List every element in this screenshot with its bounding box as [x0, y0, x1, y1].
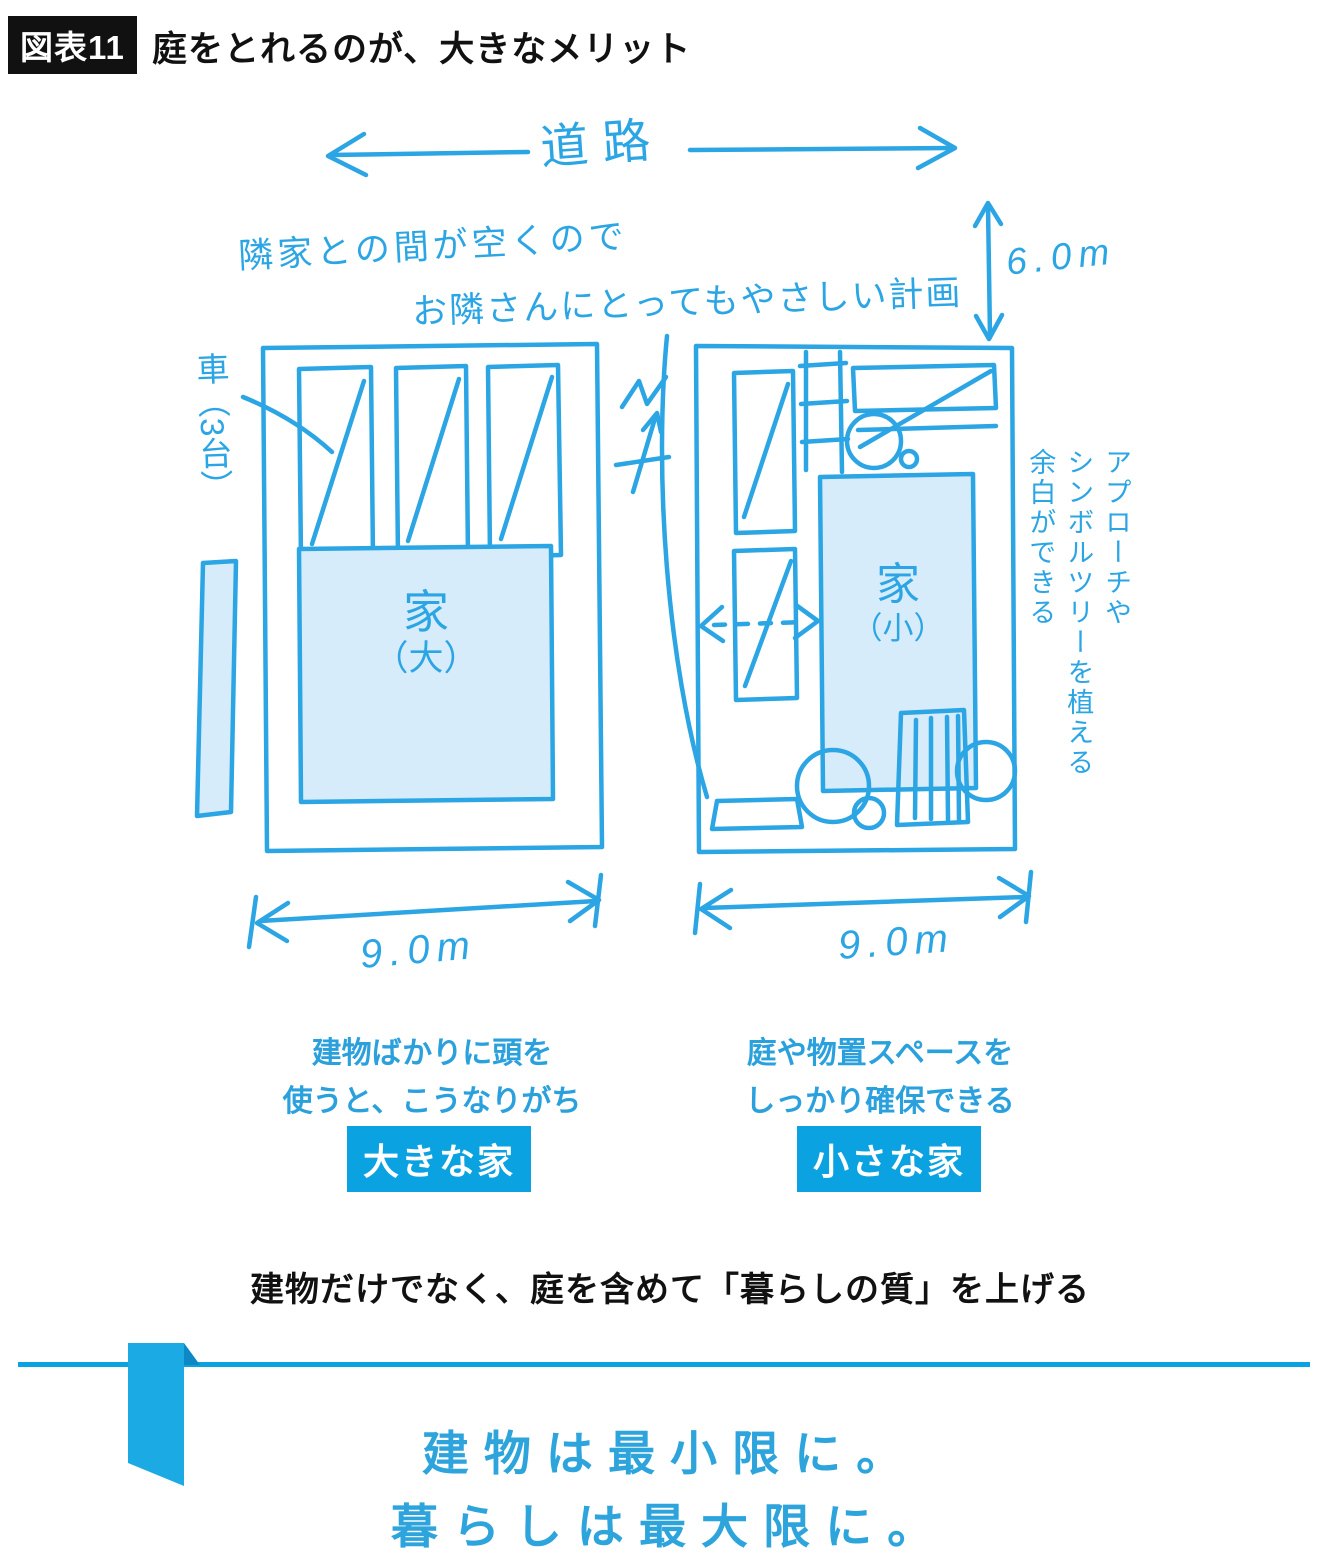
house-small-label-line2: （小）	[798, 611, 998, 647]
caption-large-house-line1: 建物ばかりに頭を	[252, 1030, 612, 1078]
caption-small-house: 庭や物置スペースを しっかり確保できる	[700, 1030, 1060, 1126]
margin-benefit-note-line2: シンボルツリーを植える	[1058, 448, 1096, 1108]
ribbon-fold	[184, 1343, 200, 1365]
figure-page: { "colors":{ "sketch_blue":"#2ba5e4", "l…	[0, 0, 1340, 1568]
caption-small-house-line1: 庭や物置スペースを	[700, 1030, 1060, 1078]
small-house-badge: 小さな家	[797, 1126, 981, 1192]
house-large-label-line1: 家	[326, 586, 526, 639]
slogan-line1: 建物は最小限に。	[30, 1418, 1310, 1491]
neighbor-house-strip	[197, 561, 236, 816]
figure-number-badge: 図表11	[8, 16, 137, 74]
caption-large-house: 建物ばかりに頭を 使うと、こうなりがち	[252, 1030, 612, 1126]
margin-benefit-note: アプローチや シンボルツリーを植える 余白ができる	[1022, 448, 1134, 1108]
width-dimension-right-label: 9.0m	[837, 916, 957, 969]
house-small-label-line1: 家	[798, 560, 998, 611]
footer-rule	[18, 1362, 1310, 1367]
caption-large-house-line2: 使うと、こうなりがち	[252, 1078, 612, 1126]
slogan-text: 建物は最小限に。 暮らしは最大限に。	[30, 1418, 1310, 1564]
margin-benefit-note-line1: アプローチや	[1096, 448, 1134, 1108]
parking-stalls-right	[734, 371, 797, 700]
house-large-label: 家 （大）	[326, 586, 526, 679]
house-small-label: 家 （小）	[798, 560, 998, 646]
road-label: 道路	[538, 100, 667, 178]
margin-benefit-note-line3: 余白ができる	[1021, 448, 1059, 1108]
summary-text: 建物だけでなく、庭を含めて「暮らしの質」を上げる	[0, 1262, 1340, 1311]
terrace-with-diagonal	[853, 365, 996, 447]
approach-steps	[800, 352, 848, 472]
figure-title: 庭をとれるのが、大きなメリット	[152, 21, 691, 72]
car-count-label: 車（3台）	[185, 351, 238, 503]
site-plan-sketch	[0, 0, 1340, 1568]
slogan-line2: 暮らしは最大限に。	[30, 1491, 1310, 1564]
car-label-leader	[243, 397, 332, 452]
setback-arrow	[975, 203, 1002, 339]
parking-stalls-left	[299, 365, 561, 561]
house-large-label-line2: （大）	[326, 639, 526, 679]
caption-small-house-line2: しっかり確保できる	[700, 1078, 1060, 1126]
large-house-badge: 大きな家	[347, 1126, 531, 1192]
